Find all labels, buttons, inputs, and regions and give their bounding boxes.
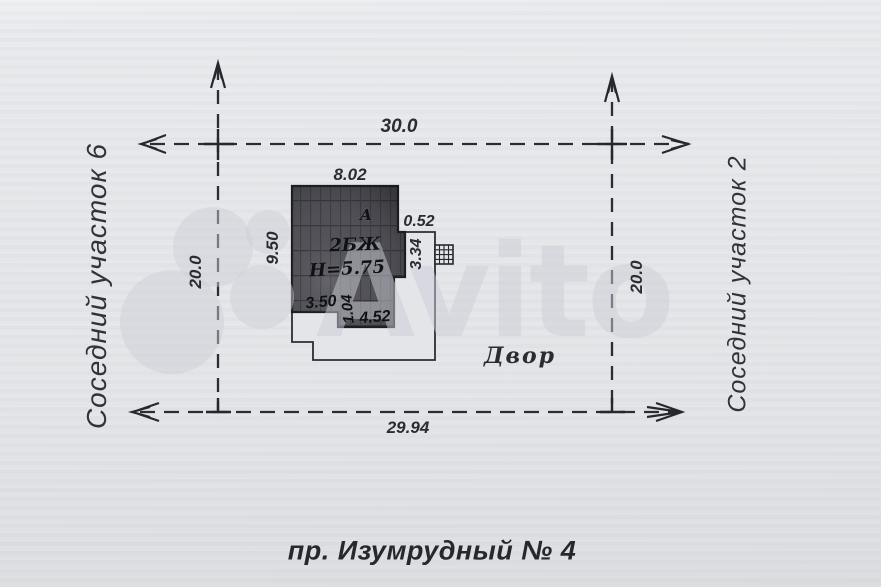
street-address-label: пр. Изумрудный № 4 <box>288 536 576 567</box>
tick-bottom-left <box>206 398 231 412</box>
neighbor-plot-left-label: Соседний участок 6 <box>81 143 113 429</box>
dim-plot-left: 20.0 <box>186 255 206 288</box>
dim-building-left: 9.50 <box>263 231 283 264</box>
porch-steps <box>435 245 453 264</box>
dim-annex-right: 3.34 <box>408 238 426 269</box>
dim-plot-right: 20.0 <box>627 260 647 293</box>
scanned-site-plan-photo: Avito Соседний участок 6 Соседний участо… <box>0 0 881 587</box>
neighbor-plot-right-label: Соседний участок 2 <box>724 155 753 412</box>
dim-plot-bottom: 29.94 <box>387 418 430 438</box>
dim-bottom-right: 4.52 <box>359 308 391 328</box>
dim-bottom-step: 1.04 <box>338 294 357 325</box>
dim-building-top: 8.02 <box>333 165 366 185</box>
building-corner-letter: А <box>360 206 372 224</box>
building-height-label: Н=5.75 <box>309 257 386 282</box>
cross-top-left <box>204 129 234 160</box>
dim-step-right: 0.52 <box>403 213 434 231</box>
building-type-label: 2БЖ <box>329 234 381 257</box>
tick-bottom-right <box>600 398 625 412</box>
dim-bottom-left: 3.50 <box>305 293 338 314</box>
yard-label: Двор <box>484 343 556 369</box>
cross-top-right <box>597 129 627 160</box>
dim-plot-top: 30.0 <box>381 116 418 138</box>
